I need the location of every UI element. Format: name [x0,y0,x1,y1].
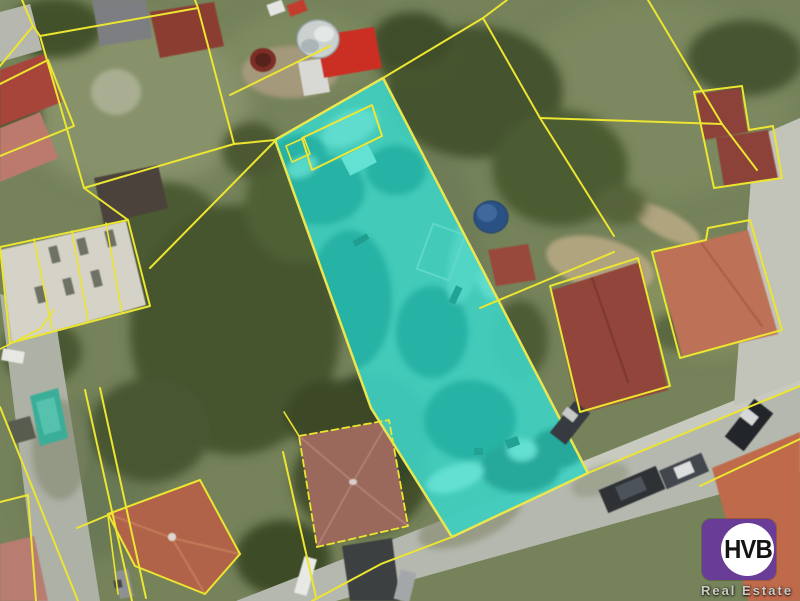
tree [594,185,646,225]
parcel-shade [366,145,426,195]
aerial-map [0,0,800,601]
listing-photo: HVB Real Estate [0,0,800,601]
agency-logo: HVB Real Estate [694,514,800,601]
car-window [113,579,122,588]
tree [90,378,210,482]
chimney [168,533,176,541]
shed-darkred-1 [696,88,748,140]
circle-patch [91,69,141,115]
chimney [349,479,357,485]
pool-blue-water [477,204,497,222]
logo-abbreviation: HVB [724,534,772,565]
trampoline-center [255,53,271,67]
building-roof-gray-top [92,0,152,46]
parcel-mark [474,448,483,455]
tree [687,20,800,96]
pool-round-shade [301,39,319,53]
logo-subtitle: Real Estate [694,583,800,598]
logo-circle: HVB [721,523,774,576]
shed-red-middle [488,244,536,286]
pool-round-highlight [314,26,334,42]
